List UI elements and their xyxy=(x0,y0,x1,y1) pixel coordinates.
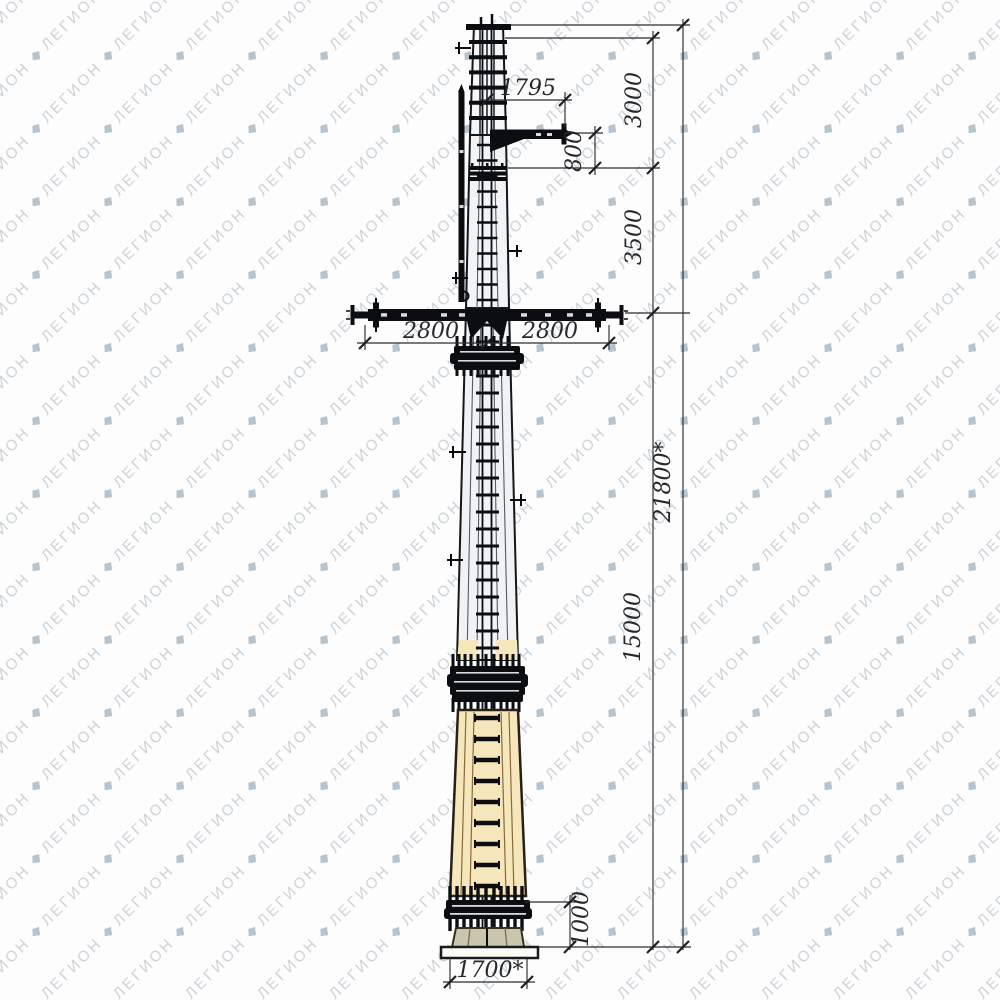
dim-label-upper-section-height: 3500 xyxy=(622,209,647,265)
base-plate xyxy=(441,947,538,958)
ladder-rungs-lower xyxy=(474,714,500,890)
dim-label-arm-vertical-offset: 800 xyxy=(562,130,587,172)
aux-conduit xyxy=(458,84,465,302)
dim-label-crossarm-right-half: 2800 xyxy=(521,319,578,344)
pole-elevation-drawing: 1795 3000 800 3500 2800 2800 15000 21800… xyxy=(0,0,1000,1000)
dim-label-crossarm-left-half: 2800 xyxy=(402,319,459,344)
extension-lines xyxy=(365,25,691,989)
flange-joint-mid xyxy=(447,654,528,712)
dim-label-base-section-height: 1000 xyxy=(569,891,594,947)
dim-label-arm-length: 1795 xyxy=(500,76,556,101)
dim-label-top-section-height: 3000 xyxy=(622,72,647,128)
dim-label-crossarm-height: 15000 xyxy=(621,592,646,662)
dim-label-total-height: 21800* xyxy=(651,442,676,524)
dim-label-base-width: 1700* xyxy=(457,958,524,983)
drawing-canvas: ЛЕГИОНЛЕГИОНЛЕГИОНЛЕГИОНЛЕГИОНЛЕГИОНЛЕГИ… xyxy=(0,0,1000,1000)
